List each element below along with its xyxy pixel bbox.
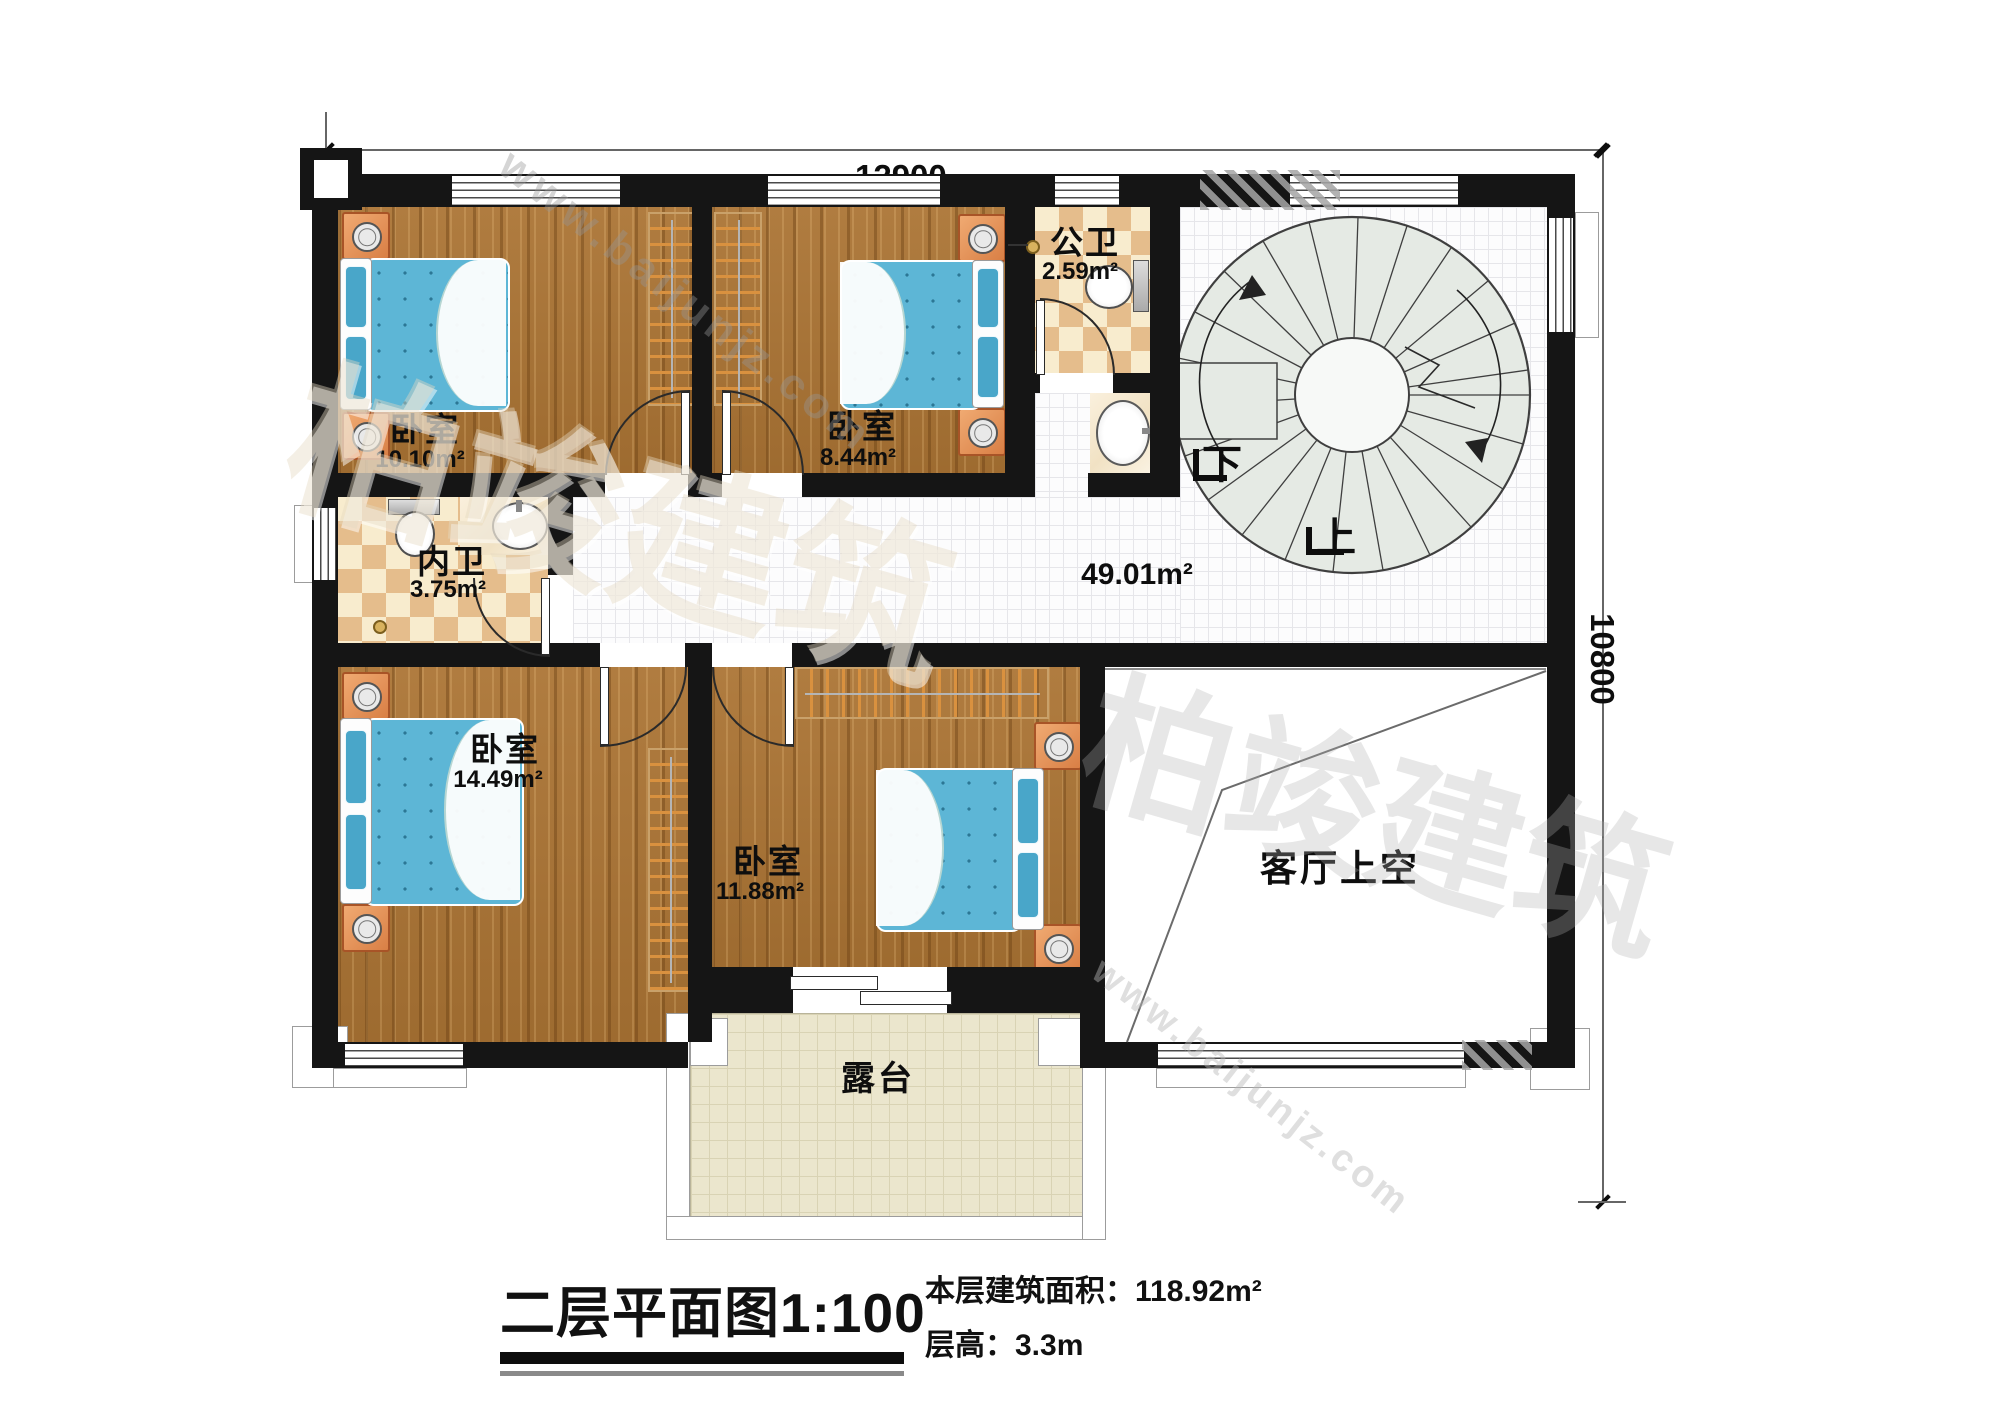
floor-height-label: 层高：: [925, 1329, 1015, 1362]
door-leaf-bedroom-bl: [600, 667, 609, 745]
lamp-icon: [352, 682, 382, 712]
nightstand: [1034, 924, 1082, 972]
watermark-hatch: [1200, 170, 1340, 210]
dim-ext-top-left: [325, 112, 327, 150]
nightstand: [958, 214, 1006, 262]
floor-plan-canvas: 下 上 卧室 10.10m² 卧室 8.44m² 公卫 2.59m² 内卫 3.…: [0, 0, 2000, 1413]
spiral-staircase: [1167, 205, 1547, 585]
plan-title: 二层平面图1:100: [500, 1268, 926, 1348]
bedroom-bm-area: 11.88m²: [716, 880, 804, 904]
bed-tl: [340, 258, 506, 408]
lamp-icon: [1044, 934, 1074, 964]
wall-corridor-top-b: [688, 473, 722, 497]
dim-ext-bottom-right: [1578, 1201, 1626, 1203]
wall-niche-bottom: [1088, 473, 1152, 497]
wall-corridor-bottom-b: [685, 643, 712, 667]
pillow: [345, 266, 367, 328]
wall-corridor-bottom-a: [312, 643, 600, 667]
closet-bedroom-tm: [714, 212, 762, 406]
bedroom-bl-name: 卧室: [470, 733, 540, 766]
pillow: [345, 730, 367, 804]
ledge-left-window-sill: [294, 505, 314, 583]
bedroom-tl-name: 卧室: [390, 413, 460, 446]
bedroom-bm-name: 卧室: [733, 845, 803, 878]
nightstand: [342, 212, 390, 260]
floor-drain: [373, 620, 387, 634]
window-bedroom-tl: [452, 176, 620, 205]
living-void-name: 客厅上空: [1260, 850, 1420, 887]
bed-bm: [876, 768, 1042, 928]
bath-entry-floor: [1035, 393, 1090, 497]
nightstand: [342, 904, 390, 952]
dim-line-top: [325, 149, 1602, 151]
wall-corridor-top-c: [802, 473, 1035, 497]
ledge-bottom-right-sill: [1156, 1068, 1466, 1088]
door-leaf-bedroom-bm: [785, 667, 794, 745]
inner-bath-area: 3.75m²: [410, 578, 486, 602]
pillow: [345, 336, 367, 400]
title-underline-thin: [500, 1371, 904, 1376]
lamp-icon: [352, 914, 382, 944]
window-bedroom-bl: [345, 1044, 463, 1066]
closet-bedroom-bl: [648, 748, 692, 992]
door-leaf-public-bath: [1036, 300, 1045, 375]
closet-bedroom-tl: [648, 212, 694, 406]
nightstand: [958, 408, 1006, 456]
title-underline-thick: [500, 1352, 904, 1364]
wall-b4-void: [1080, 643, 1105, 1068]
lamp-icon: [968, 224, 998, 254]
lamp-icon: [968, 418, 998, 448]
bedroom-tm-name: 卧室: [827, 410, 897, 443]
terrace-parapet-bottom: [666, 1216, 1106, 1240]
sink-hall-niche: [1096, 400, 1150, 466]
inner-bath-name: 内卫: [417, 545, 487, 578]
nightstand: [342, 672, 390, 720]
pillow: [1017, 852, 1039, 918]
window-inner-bath: [314, 508, 336, 580]
dim-height-label: 10800: [1583, 613, 1621, 705]
hall-area: 49.01m²: [1081, 560, 1193, 590]
window-right-wall: [1549, 218, 1573, 332]
wall-bath-stairhall: [1150, 207, 1180, 497]
stairs-up-mark-v: [1306, 527, 1312, 551]
door-leaf-inner-bath: [541, 578, 550, 655]
wall-bath-bottom-b: [1113, 373, 1153, 393]
ledge-right-window-sill: [1575, 212, 1599, 338]
public-bath-area: 2.59m²: [1042, 260, 1118, 284]
sink-inner-bath: [492, 502, 548, 550]
door-stop-dot: [1026, 240, 1040, 254]
closet-bedroom-bm: [795, 667, 1049, 719]
pillow: [1017, 778, 1039, 844]
door-stop-line: [1008, 244, 1028, 246]
stairs-down-label: 下: [1202, 432, 1242, 490]
bedroom-tl-area: 10.10m²: [375, 448, 464, 472]
wall-b1-b2: [692, 207, 712, 473]
door-leaf-bedroom-tl: [681, 392, 690, 475]
ledge-bottom-left-sill: [333, 1068, 467, 1088]
window-public-bath: [1055, 176, 1119, 205]
floor-height-line: 层高：3.3m: [925, 1320, 1083, 1364]
terrace-sliding-door-left: [790, 976, 878, 990]
bedroom-tm-area: 8.44m²: [820, 446, 896, 470]
window-bedroom-tm: [768, 176, 940, 205]
bed-tm: [840, 260, 1002, 406]
pillow: [977, 336, 999, 398]
wall-corridor-top-a: [312, 473, 605, 497]
pillow: [345, 814, 367, 890]
terrace-parapet-right: [1082, 1066, 1106, 1240]
wall-b4-bottom-a: [688, 967, 793, 1013]
door-leaf-bedroom-tm: [722, 392, 731, 475]
corner-notch-inner: [314, 160, 348, 198]
window-living-void: [1158, 1044, 1464, 1066]
wall-innerbath-right: [548, 497, 573, 575]
faucet-icon: [516, 500, 522, 512]
lamp-icon: [352, 222, 382, 252]
wall-left: [312, 174, 338, 1068]
watermark-hatch: [1462, 1040, 1532, 1070]
pillow: [977, 268, 999, 328]
terrace-floor: [690, 1013, 1084, 1220]
stairs-down-mark-h: [1193, 475, 1227, 481]
lamp-icon: [1044, 732, 1074, 762]
floor-area-value: 118.92m²: [1135, 1275, 1262, 1308]
terrace-sliding-door-right: [860, 991, 952, 1005]
wall-bath-bottom-a: [1010, 373, 1040, 393]
toilet-tank: [1133, 260, 1149, 312]
terrace-name: 露台: [841, 1062, 915, 1096]
floor-area-line: 本层建筑面积：118.92m²: [925, 1266, 1262, 1310]
bedroom-bl-area: 14.49m²: [453, 768, 542, 792]
public-bath-name: 公卫: [1050, 226, 1120, 259]
floor-height-value: 3.3m: [1015, 1329, 1083, 1362]
terrace-post-right: [1038, 1018, 1082, 1066]
floor-area-label: 本层建筑面积：: [925, 1275, 1135, 1308]
nightstand: [1034, 722, 1082, 770]
